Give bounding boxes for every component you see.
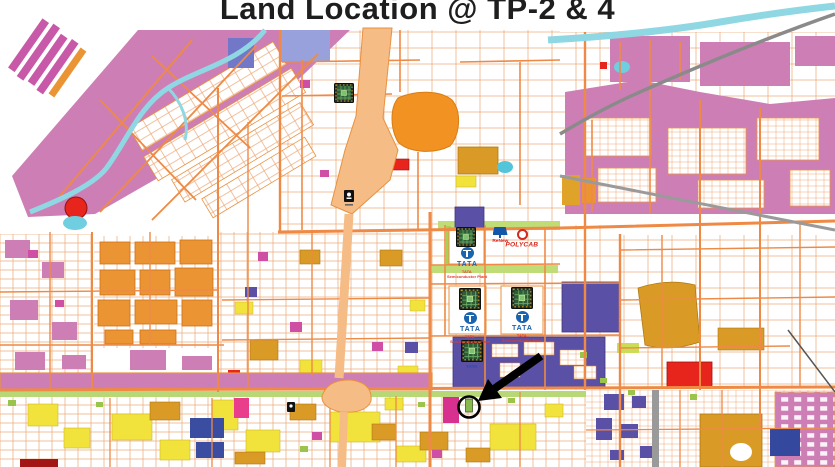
tata-plant-label-2: TATA TATA Semiconductor Plant: [442, 312, 498, 345]
semiconductor-chip-icon: [335, 84, 354, 103]
page-title: Land Location @ TP-2 & 4: [0, 0, 835, 27]
semiconductor-chip-icon: [460, 289, 481, 310]
tata-plant-label-1: TATA TATA Semiconductor Plant: [439, 247, 495, 280]
tata-logo-icon: [461, 247, 474, 259]
ring-emblem-icon: [517, 229, 528, 240]
plant-caption-line2: Semiconductor Plant: [502, 339, 542, 342]
tata-wordmark: TATA: [512, 324, 533, 332]
semiconductor-chip-icon: [512, 288, 533, 309]
plant-caption-line2: Semiconductor Plant: [450, 340, 490, 343]
polycab-wordmark: POLYCAB: [506, 241, 539, 248]
plant-caption-line1: TATA: [462, 270, 472, 273]
tata-logo-icon: [516, 311, 529, 323]
plant-caption-line1: TATA: [465, 335, 475, 338]
lake: [63, 216, 87, 230]
lake-cluster: [63, 197, 87, 230]
plant-caption-line2: Semiconductor Plant: [447, 275, 487, 278]
land-use-map: [0, 0, 835, 467]
target-parcel: [466, 399, 473, 412]
red-zone-blob: [65, 197, 87, 219]
activation-node: [392, 92, 459, 151]
chip-site-caption: TATA: [466, 364, 478, 369]
polycab-label-block: POLYCAB: [502, 229, 542, 252]
slide: { "title": "Land Location @ TP-2 & 4", "…: [0, 0, 835, 467]
tata-logo-icon: [464, 312, 477, 324]
chip-site-label: TATA: [455, 364, 489, 373]
tata-wordmark: TATA: [457, 260, 478, 268]
tata-plant-label-3: TATA TATA Semiconductor Plant: [494, 311, 550, 344]
semiconductor-chip-icon: [457, 228, 476, 247]
pond: [614, 61, 630, 73]
tata-wordmark: TATA: [460, 325, 481, 333]
plant-caption-line1: TATA: [517, 334, 527, 337]
